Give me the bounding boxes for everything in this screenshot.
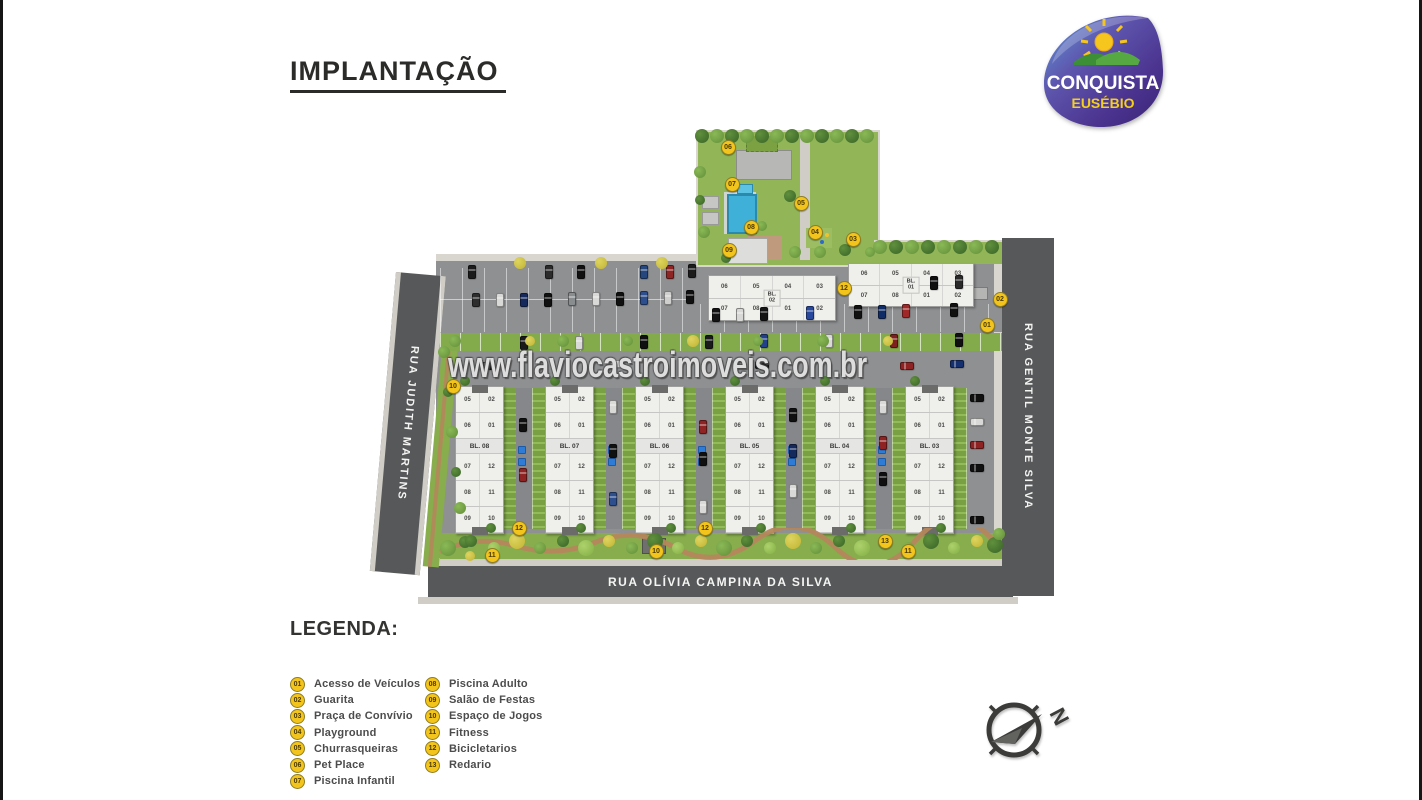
unit-number: 01 — [840, 413, 863, 438]
legend-item-number: 08 — [425, 677, 440, 692]
conquista-eusebio-logo: CONQUISTA EUSÉBIO — [1032, 12, 1174, 130]
tree-icon — [814, 246, 826, 258]
parking-paver-strip — [503, 388, 517, 529]
legend-item-label: Piscina Adulto — [449, 678, 528, 690]
parking-paver-strip — [892, 388, 906, 529]
unit-number: 12 — [570, 454, 593, 479]
unit-number: 06 — [849, 264, 880, 285]
tree-icon — [800, 129, 814, 143]
legend-item-number: 01 — [290, 677, 305, 692]
unit-number: 07 — [906, 454, 930, 479]
unit-number: 01 — [750, 413, 773, 438]
parked-car — [577, 265, 585, 279]
parked-car — [688, 264, 696, 278]
unit-row: 0811 — [546, 481, 593, 507]
unit-number: 11 — [480, 481, 503, 506]
tree-icon — [810, 542, 822, 554]
tree-icon — [923, 533, 939, 549]
legend-item-number: 12 — [425, 741, 440, 756]
legend-item-label: Pet Place — [314, 759, 365, 771]
parked-car — [496, 293, 504, 307]
legend-item-label: Guarita — [314, 694, 354, 706]
unit-row: 0811 — [906, 481, 953, 507]
legend-item-label: Piscina Infantil — [314, 775, 395, 787]
legend-item-number: 11 — [425, 725, 440, 740]
parked-car — [878, 305, 886, 319]
unit-number: 11 — [570, 481, 593, 506]
building-label: BL. 07 — [546, 439, 593, 454]
tree-icon — [595, 257, 607, 269]
parked-car — [879, 472, 887, 486]
parked-car — [955, 275, 963, 289]
guard-house — [972, 287, 988, 300]
tree-icon — [666, 523, 676, 533]
map-marker-12: 12 — [837, 281, 852, 296]
parked-car — [789, 484, 797, 498]
parked-car — [640, 291, 648, 305]
bbq-kiosk — [702, 212, 719, 225]
parked-car — [950, 360, 964, 368]
parked-car — [468, 265, 476, 279]
tree-icon — [486, 523, 496, 533]
tree-icon — [626, 542, 638, 554]
unit-number: 08 — [906, 481, 930, 506]
map-marker-05: 05 — [794, 196, 809, 211]
building-bl-05: 05020601BL. 05071208110910 — [725, 386, 774, 534]
building-bl-04: 05020601BL. 04071208110910 — [815, 386, 864, 534]
parked-car — [879, 400, 887, 414]
legend-item-label: Acesso de Veículos — [314, 678, 420, 690]
building-label: BL. 04 — [816, 439, 863, 454]
unit-number: 12 — [750, 454, 773, 479]
legend-column: 08Piscina Adulto09Salão de Festas10Espaç… — [425, 676, 542, 773]
unit-number: 07 — [546, 454, 570, 479]
unit-number: 07 — [456, 454, 480, 479]
unit-row: 0712 — [546, 454, 593, 480]
unit-number: 12 — [840, 454, 863, 479]
tree-icon — [534, 542, 546, 554]
tree-icon — [883, 336, 893, 346]
map-marker-07: 07 — [725, 177, 740, 192]
tree-icon — [451, 467, 461, 477]
parking-paver-strip — [712, 388, 726, 529]
parked-car — [760, 307, 768, 321]
building-entry-canopy — [832, 385, 848, 393]
building-bl-06: 05020601BL. 06071208110910 — [635, 386, 684, 534]
parked-car — [970, 516, 984, 524]
legend-item: 01Acesso de Veículos — [290, 676, 420, 692]
logo-name: CONQUISTA — [1047, 73, 1160, 94]
tree-icon — [755, 129, 769, 143]
building-label: BL.01 — [903, 277, 920, 294]
unit-number: 07 — [636, 454, 660, 479]
building-entry-canopy — [472, 385, 488, 393]
entrance-driveway — [994, 302, 1002, 332]
parked-car — [902, 304, 910, 318]
parked-car — [520, 293, 528, 307]
playground-equipment-icon — [820, 240, 824, 244]
building-bl-07: 05020601BL. 07071208110910 — [545, 386, 594, 534]
map-marker-11: 11 — [485, 548, 500, 563]
parked-car — [699, 452, 707, 466]
tree-icon — [710, 129, 724, 143]
unit-number: 06 — [709, 276, 741, 298]
accessible-parking-icon — [788, 458, 796, 466]
tree-icon — [454, 502, 466, 514]
tree-icon — [889, 240, 903, 254]
tree-icon — [921, 240, 935, 254]
parked-car — [789, 408, 797, 422]
unit-number: 01 — [930, 413, 953, 438]
parked-car — [879, 436, 887, 450]
parked-car — [666, 265, 674, 279]
unit-row: 0712 — [816, 454, 863, 480]
tree-icon — [514, 257, 526, 269]
tree-icon — [557, 535, 569, 547]
map-marker-02: 02 — [993, 292, 1008, 307]
parking-paver-strip — [593, 388, 607, 529]
parking-paver-strip — [953, 388, 967, 529]
tree-icon — [830, 129, 844, 143]
parked-car — [664, 291, 672, 305]
parked-car — [544, 293, 552, 307]
tree-icon — [698, 226, 710, 238]
legend-item: 05Churrasqueiras — [290, 741, 420, 757]
parked-car — [568, 292, 576, 306]
accessible-parking-icon — [608, 458, 616, 466]
tree-icon — [465, 535, 477, 547]
tree-icon — [757, 221, 767, 231]
parking-paver-strip — [863, 388, 877, 529]
legend-item: 07Piscina Infantil — [290, 773, 420, 789]
tree-icon — [971, 535, 983, 547]
legend-item: 06Pet Place — [290, 757, 420, 773]
tree-icon — [953, 240, 967, 254]
parked-car — [736, 308, 744, 322]
parked-car — [699, 420, 707, 434]
tree-icon — [576, 523, 586, 533]
tree-icon — [905, 240, 919, 254]
unit-number: 08 — [546, 481, 570, 506]
tree-icon — [873, 240, 887, 254]
parked-car — [609, 444, 617, 458]
watermark-text: www.flaviocastroimoveis.com.br — [448, 344, 867, 386]
tree-icon — [789, 246, 801, 258]
parking-paver-strip — [683, 388, 697, 529]
street-bottom-label: RUA OLÍVIA CAMPINA DA SILVA — [608, 575, 833, 589]
unit-row: 0811 — [726, 481, 773, 507]
parking-paver-strip — [622, 388, 636, 529]
tree-icon — [695, 535, 707, 547]
unit-row: 0601 — [726, 413, 773, 439]
parked-car — [609, 400, 617, 414]
building-label: BL. 08 — [456, 439, 503, 454]
building-entry-canopy — [562, 385, 578, 393]
legend-item-label: Salão de Festas — [449, 694, 535, 706]
unit-number: 11 — [750, 481, 773, 506]
tree-icon — [756, 523, 766, 533]
unit-number: 11 — [840, 481, 863, 506]
parked-car — [712, 308, 720, 322]
parked-car — [789, 444, 797, 458]
legend-column: 01Acesso de Veículos02Guarita03Praça de … — [290, 676, 420, 789]
parked-car — [472, 293, 480, 307]
unit-number: 07 — [816, 454, 840, 479]
legend-item-label: Playground — [314, 727, 377, 739]
building-entry-canopy — [922, 385, 938, 393]
legend-item-number: 06 — [290, 758, 305, 773]
tree-icon — [815, 129, 829, 143]
legend-item-number: 10 — [425, 709, 440, 724]
building-label: BL.02 — [764, 290, 781, 307]
tree-icon — [948, 542, 960, 554]
parked-car — [592, 292, 600, 306]
legend-heading: LEGENDA: — [290, 618, 398, 641]
legend-item-number: 02 — [290, 693, 305, 708]
legend-item-label: Redario — [449, 759, 491, 771]
tree-icon — [741, 535, 753, 547]
parking-paver-strip — [532, 388, 546, 529]
legend-item-label: Espaço de Jogos — [449, 710, 542, 722]
unit-number: 07 — [849, 286, 880, 307]
building-label: BL. 06 — [636, 439, 683, 454]
legend-item: 04Playground — [290, 725, 420, 741]
legend-item: 11Fitness — [425, 725, 542, 741]
legend-item-number: 05 — [290, 741, 305, 756]
map-marker-10: 10 — [649, 544, 664, 559]
building-entry-canopy — [742, 385, 758, 393]
legend-item: 03Praça de Convívio — [290, 708, 420, 724]
unit-number: 11 — [930, 481, 953, 506]
unit-row: 0601 — [546, 413, 593, 439]
street-bottom: RUA OLÍVIA CAMPINA DA SILVA — [428, 566, 1013, 597]
unit-number: 08 — [816, 481, 840, 506]
tree-icon — [672, 542, 684, 554]
legend-item-label: Bicicletarios — [449, 743, 517, 755]
left-edge-bar — [0, 0, 3, 800]
street-right: RUA GENTIL MONTE SILVA — [1002, 238, 1054, 596]
map-marker-11: 11 — [901, 544, 916, 559]
building-label: BL. 03 — [906, 439, 953, 454]
building-entry-canopy — [652, 385, 668, 393]
accessible-parking-icon — [878, 458, 886, 466]
unit-number: 06 — [906, 413, 930, 438]
parked-car — [616, 292, 624, 306]
legend-item-number: 13 — [425, 758, 440, 773]
building-label-line: 01 — [908, 285, 914, 291]
parked-car — [519, 418, 527, 432]
tree-icon — [785, 533, 801, 549]
parked-car — [970, 418, 984, 426]
parked-car — [900, 362, 914, 370]
unit-row: 0601 — [636, 413, 683, 439]
unit-number: 12 — [660, 454, 683, 479]
parked-car — [519, 468, 527, 482]
unit-number: 01 — [660, 413, 683, 438]
legend-item: 10Espaço de Jogos — [425, 708, 542, 724]
parked-car — [686, 290, 694, 304]
parked-car — [699, 500, 707, 514]
tree-icon — [695, 129, 709, 143]
legend-item-number: 07 — [290, 774, 305, 789]
parked-car — [970, 464, 984, 472]
unit-number: 03 — [804, 276, 835, 298]
legend-item-number: 03 — [290, 709, 305, 724]
playground-equipment-icon — [825, 233, 829, 237]
parked-car — [955, 333, 963, 347]
tree-icon — [865, 247, 875, 257]
unit-row: 0601 — [816, 413, 863, 439]
parked-car — [806, 306, 814, 320]
tree-icon — [936, 523, 946, 533]
tree-icon — [910, 376, 920, 386]
tree-icon — [846, 523, 856, 533]
map-marker-04: 04 — [808, 225, 823, 240]
tree-icon — [695, 195, 705, 205]
legend-item: 09Salão de Festas — [425, 692, 542, 708]
parking-paver-strip — [773, 388, 787, 529]
legend-item: 12Bicicletarios — [425, 741, 542, 757]
accessible-parking-icon — [518, 446, 526, 454]
map-marker-09: 09 — [722, 243, 737, 258]
building-bl-02: 0605040307080102BL.02 — [708, 275, 836, 321]
unit-row: 0601 — [906, 413, 953, 439]
unit-number: 08 — [726, 481, 750, 506]
tree-icon — [770, 129, 784, 143]
parked-car — [640, 265, 648, 279]
page-title: IMPLANTAÇÃO — [290, 56, 506, 93]
unit-number: 07 — [726, 454, 750, 479]
tree-icon — [785, 129, 799, 143]
parked-car — [854, 305, 862, 319]
map-marker-03: 03 — [846, 232, 861, 247]
map-marker-08: 08 — [744, 220, 759, 235]
tree-icon — [716, 540, 732, 556]
tree-icon — [465, 551, 475, 561]
compass-icon: N — [978, 690, 1078, 768]
unit-number: 06 — [636, 413, 660, 438]
map-marker-12: 12 — [512, 521, 527, 536]
unit-number: 11 — [660, 481, 683, 506]
map-marker-06: 06 — [721, 140, 736, 155]
building-label: BL. 05 — [726, 439, 773, 454]
building-label-line: 02 — [769, 298, 775, 304]
parked-car — [970, 441, 984, 449]
unit-number: 12 — [930, 454, 953, 479]
unit-number: 01 — [480, 413, 503, 438]
unit-row: 0712 — [456, 454, 503, 480]
tree-icon — [969, 240, 983, 254]
tree-icon — [860, 129, 874, 143]
legend-item: 13Redario — [425, 757, 542, 773]
unit-number: 06 — [546, 413, 570, 438]
parking-paver-strip — [802, 388, 816, 529]
building-bl-03: 05020601BL. 03071208110910 — [905, 386, 954, 534]
tree-icon — [985, 240, 999, 254]
unit-number: 12 — [480, 454, 503, 479]
legend-item-label: Churrasqueiras — [314, 743, 398, 755]
tree-icon — [854, 540, 870, 556]
tree-icon — [740, 129, 754, 143]
tree-icon — [845, 129, 859, 143]
unit-row: 0712 — [906, 454, 953, 480]
unit-row: 0712 — [636, 454, 683, 480]
sidewalk-below-bottom-road — [418, 597, 1018, 604]
legend-item-label: Fitness — [449, 727, 489, 739]
unit-row: 0712 — [726, 454, 773, 480]
tree-icon — [656, 257, 668, 269]
tree-icon — [993, 528, 1005, 540]
map-marker-01: 01 — [980, 318, 995, 333]
street-right-label: RUA GENTIL MONTE SILVA — [1022, 323, 1034, 510]
legend-item-label: Praça de Convívio — [314, 710, 413, 722]
parked-car — [950, 303, 958, 317]
tree-icon — [578, 540, 594, 556]
compass-north-label: N — [1045, 704, 1075, 730]
legend-item-number: 09 — [425, 693, 440, 708]
tree-icon — [937, 240, 951, 254]
tree-icon — [694, 166, 706, 178]
site-plan-flyer: IMPLANTAÇÃO CONQUISTA EUSÉBIO RUA JUDITH… — [0, 0, 1422, 800]
unit-number: 01 — [570, 413, 593, 438]
legend-item-number: 04 — [290, 725, 305, 740]
logo-city: EUSÉBIO — [1071, 95, 1134, 111]
map-marker-13: 13 — [878, 534, 893, 549]
clubhouse-roof — [736, 150, 792, 180]
tree-icon — [446, 426, 458, 438]
unit-row: 0811 — [816, 481, 863, 507]
sun-icon — [1095, 33, 1113, 51]
unit-number: 06 — [726, 413, 750, 438]
accessible-parking-icon — [518, 458, 526, 466]
tree-icon — [603, 535, 615, 547]
unit-row: 0601 — [456, 413, 503, 439]
street-left-label: RUA JUDITH MARTINS — [395, 346, 420, 502]
unit-number: 06 — [456, 413, 480, 438]
tree-icon — [440, 540, 456, 556]
tree-icon — [833, 535, 845, 547]
unit-number: 08 — [636, 481, 660, 506]
unit-row: 0811 — [636, 481, 683, 507]
unit-number: 06 — [816, 413, 840, 438]
parked-car — [609, 492, 617, 506]
parked-car — [970, 394, 984, 402]
tree-icon — [764, 542, 776, 554]
legend-item: 08Piscina Adulto — [425, 676, 542, 692]
map-marker-12: 12 — [698, 521, 713, 536]
parked-car — [545, 265, 553, 279]
parked-car — [930, 276, 938, 290]
legend-item: 02Guarita — [290, 692, 420, 708]
